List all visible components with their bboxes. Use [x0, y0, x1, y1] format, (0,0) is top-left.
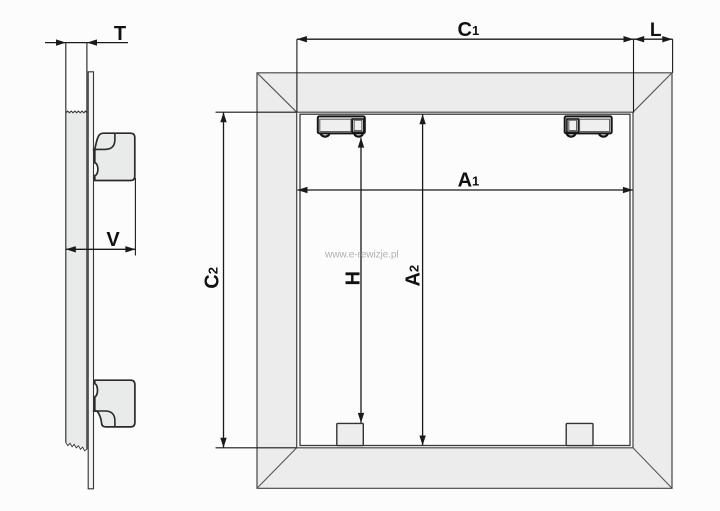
svg-text:V: V	[106, 229, 120, 251]
svg-text:C2: C2	[202, 267, 224, 289]
svg-text:T: T	[114, 23, 126, 45]
svg-text:www.e-rewizje.pl: www.e-rewizje.pl	[324, 250, 398, 261]
svg-text:A2: A2	[402, 265, 424, 287]
svg-text:C1: C1	[458, 19, 480, 41]
svg-text:L: L	[650, 20, 662, 41]
svg-text:A1: A1	[458, 170, 480, 192]
svg-text:H: H	[343, 271, 365, 285]
